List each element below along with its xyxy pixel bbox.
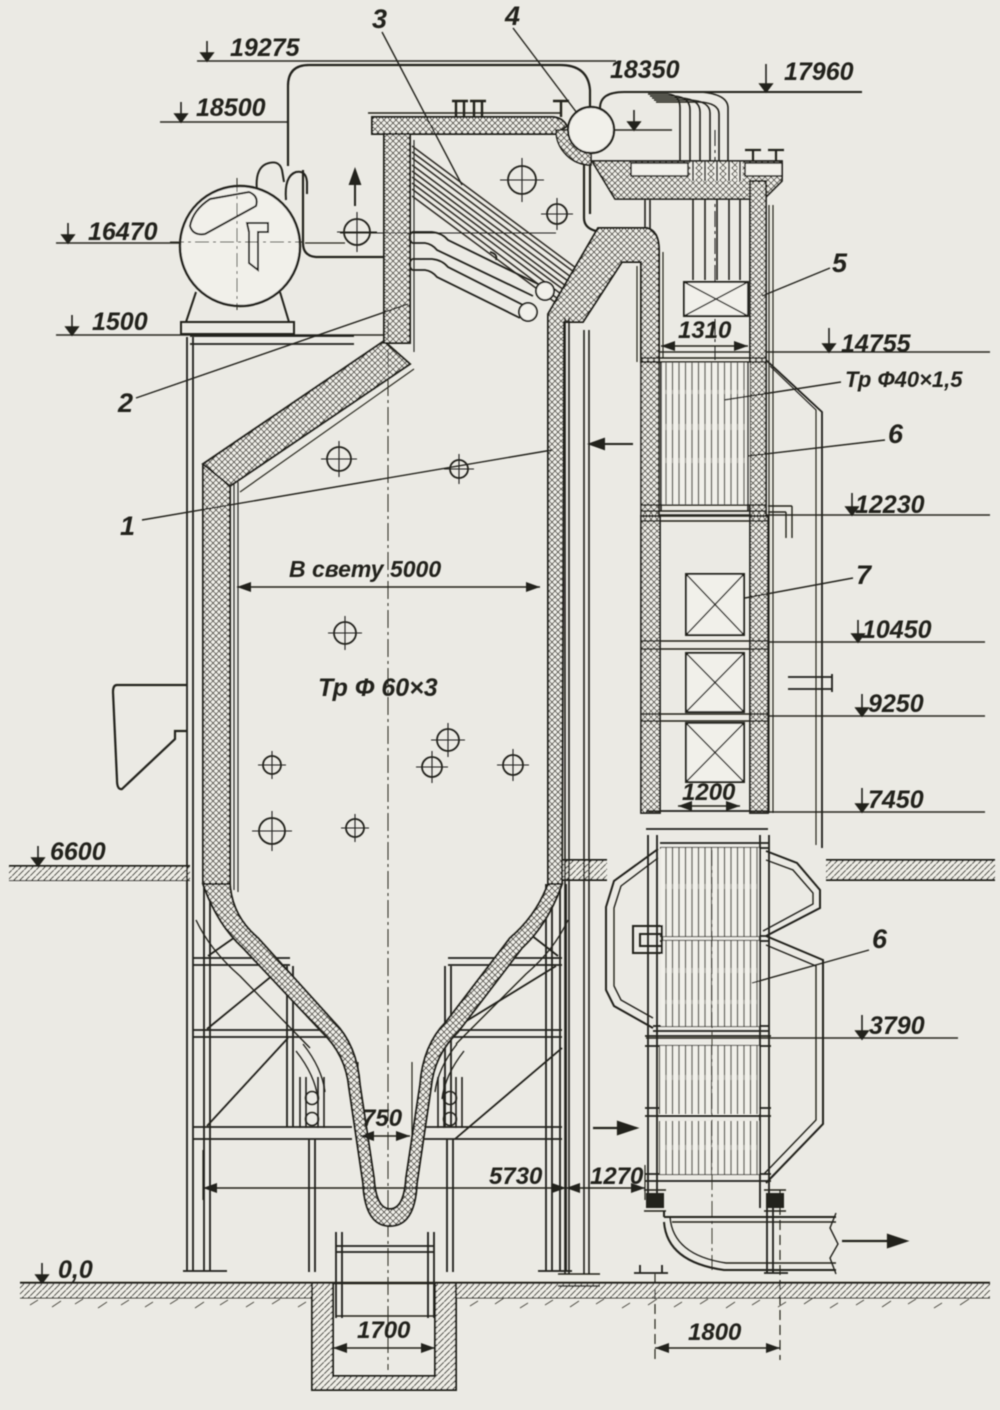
svg-text:1800: 1800 — [688, 1319, 742, 1346]
svg-text:6: 6 — [888, 419, 904, 449]
svg-text:19275: 19275 — [230, 34, 301, 62]
svg-text:В свету 5000: В свету 5000 — [289, 556, 441, 582]
svg-text:6: 6 — [872, 924, 888, 954]
svg-text:14755: 14755 — [841, 330, 912, 358]
svg-text:16470: 16470 — [88, 218, 158, 246]
svg-text:9250: 9250 — [868, 690, 924, 718]
svg-text:2: 2 — [117, 388, 133, 418]
svg-text:7: 7 — [856, 560, 873, 590]
svg-text:17960: 17960 — [784, 58, 854, 86]
svg-text:1310: 1310 — [678, 317, 732, 344]
svg-text:Тр Ф40×1,5: Тр Ф40×1,5 — [845, 367, 963, 392]
svg-text:18500: 18500 — [196, 94, 266, 122]
svg-text:750: 750 — [362, 1105, 403, 1132]
svg-text:6600: 6600 — [50, 838, 106, 866]
svg-text:1: 1 — [120, 511, 135, 541]
svg-text:18350: 18350 — [610, 56, 680, 84]
svg-text:Тр Ф 60×3: Тр Ф 60×3 — [318, 674, 438, 702]
svg-text:4: 4 — [504, 1, 520, 31]
svg-text:3: 3 — [372, 4, 387, 34]
svg-text:5730: 5730 — [489, 1163, 543, 1190]
svg-text:1500: 1500 — [92, 308, 148, 336]
svg-text:10450: 10450 — [862, 616, 932, 644]
svg-text:3790: 3790 — [869, 1012, 925, 1040]
svg-text:0,0: 0,0 — [58, 1256, 93, 1284]
svg-text:7450: 7450 — [868, 786, 924, 814]
svg-text:12230: 12230 — [855, 491, 925, 519]
svg-text:5: 5 — [832, 248, 848, 278]
svg-text:1700: 1700 — [357, 1317, 411, 1344]
